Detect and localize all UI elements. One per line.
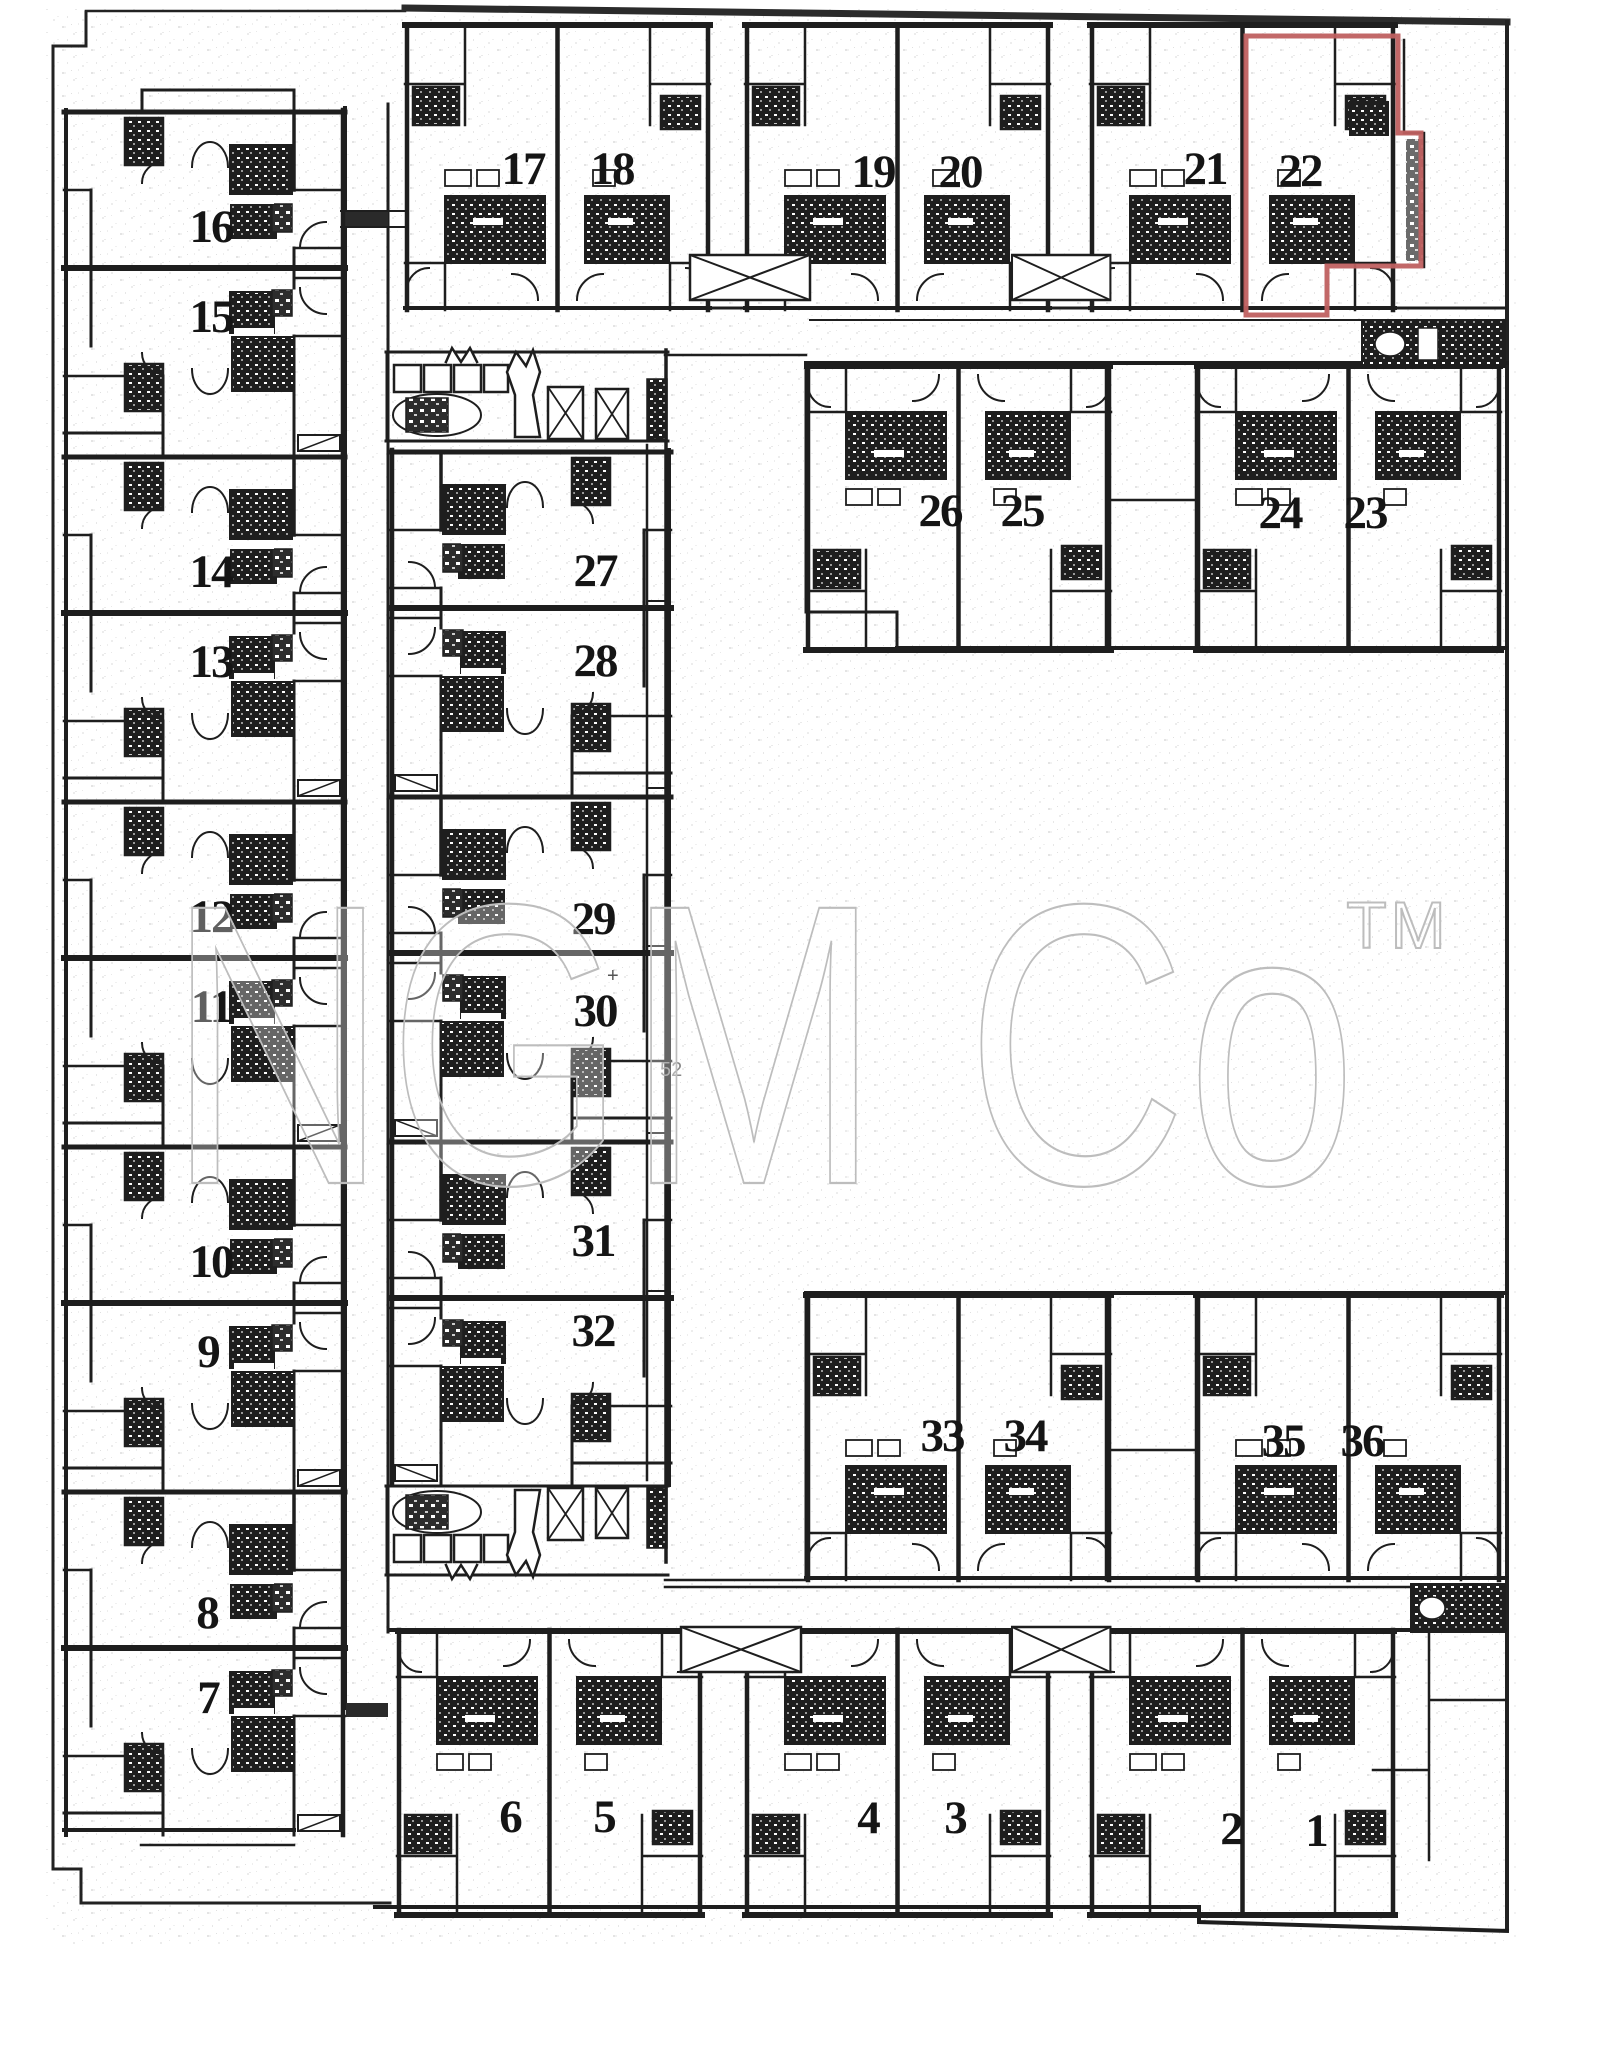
svg-text:25: 25 (1001, 485, 1045, 537)
svg-text:6: 6 (499, 1791, 522, 1843)
svg-text:TM: TM (1346, 888, 1449, 962)
svg-text:4: 4 (857, 1792, 880, 1844)
svg-text:26: 26 (919, 485, 964, 537)
svg-text:8: 8 (196, 1587, 218, 1639)
svg-text:9: 9 (197, 1326, 219, 1378)
svg-text:NGM Co: NGM Co (167, 821, 1357, 1268)
svg-text:3: 3 (944, 1792, 966, 1844)
svg-text:19: 19 (852, 146, 896, 198)
svg-text:33: 33 (921, 1410, 965, 1462)
svg-text:13: 13 (190, 636, 234, 688)
svg-text:22: 22 (1279, 145, 1323, 197)
svg-text:24: 24 (1259, 487, 1304, 539)
svg-text:18: 18 (591, 143, 635, 195)
svg-text:7: 7 (197, 1672, 220, 1724)
svg-text:32: 32 (572, 1305, 616, 1357)
svg-text:2: 2 (1220, 1803, 1242, 1855)
svg-text:14: 14 (190, 546, 235, 598)
svg-text:35: 35 (1262, 1415, 1306, 1467)
svg-text:27: 27 (574, 545, 619, 597)
svg-text:21: 21 (1184, 143, 1228, 195)
svg-text:5: 5 (593, 1791, 615, 1843)
svg-text:15: 15 (190, 291, 234, 343)
svg-text:16: 16 (190, 201, 235, 253)
svg-text:1: 1 (1305, 1805, 1327, 1857)
svg-text:34: 34 (1004, 1410, 1049, 1462)
svg-text:28: 28 (574, 635, 618, 687)
svg-text:17: 17 (502, 143, 547, 195)
svg-text:36: 36 (1341, 1415, 1386, 1467)
svg-text:20: 20 (939, 146, 983, 198)
svg-text:23: 23 (1344, 487, 1388, 539)
